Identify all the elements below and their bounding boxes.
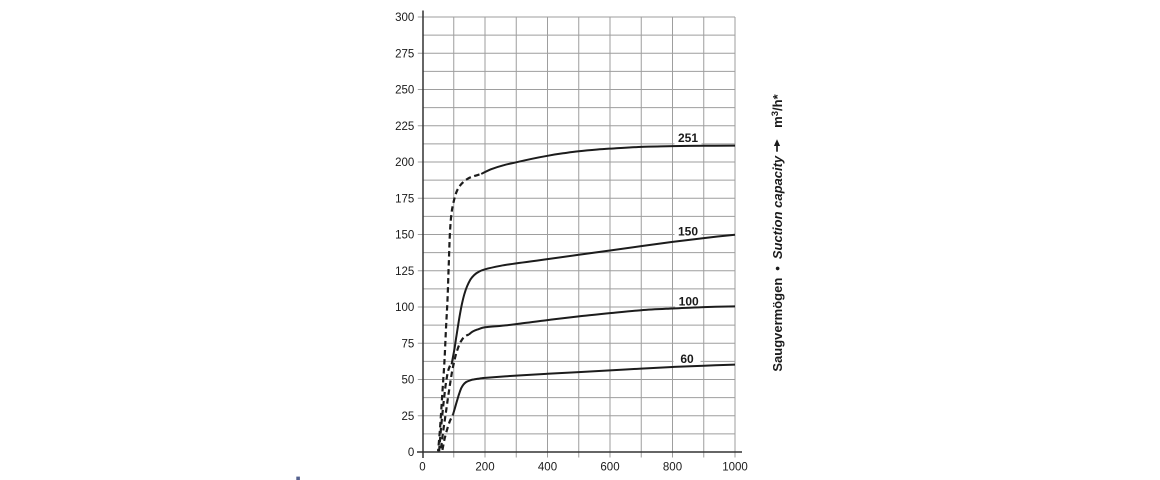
svg-text:25: 25 — [402, 411, 415, 423]
svg-text:150: 150 — [678, 224, 698, 238]
svg-text:800: 800 — [663, 462, 682, 474]
svg-text:100: 100 — [395, 302, 414, 314]
svg-text:225: 225 — [395, 121, 414, 133]
svg-text:0: 0 — [408, 447, 414, 459]
svg-text:251: 251 — [678, 131, 698, 145]
svg-text:0: 0 — [419, 462, 425, 474]
svg-text:200: 200 — [475, 462, 494, 474]
svg-text:400: 400 — [538, 462, 557, 474]
svg-text:125: 125 — [395, 266, 414, 278]
svg-text:75: 75 — [402, 338, 415, 350]
svg-text:250: 250 — [395, 85, 414, 97]
svg-text:50: 50 — [402, 375, 415, 387]
svg-text:200: 200 — [395, 157, 414, 169]
svg-text:100: 100 — [679, 295, 699, 309]
svg-text:275: 275 — [395, 48, 414, 60]
svg-text:300: 300 — [395, 12, 414, 24]
svg-text:600: 600 — [600, 462, 619, 474]
svg-text:175: 175 — [395, 193, 414, 205]
svg-text:150: 150 — [395, 230, 414, 242]
svg-text:1000: 1000 — [722, 462, 748, 474]
svg-text:60: 60 — [680, 352, 694, 366]
